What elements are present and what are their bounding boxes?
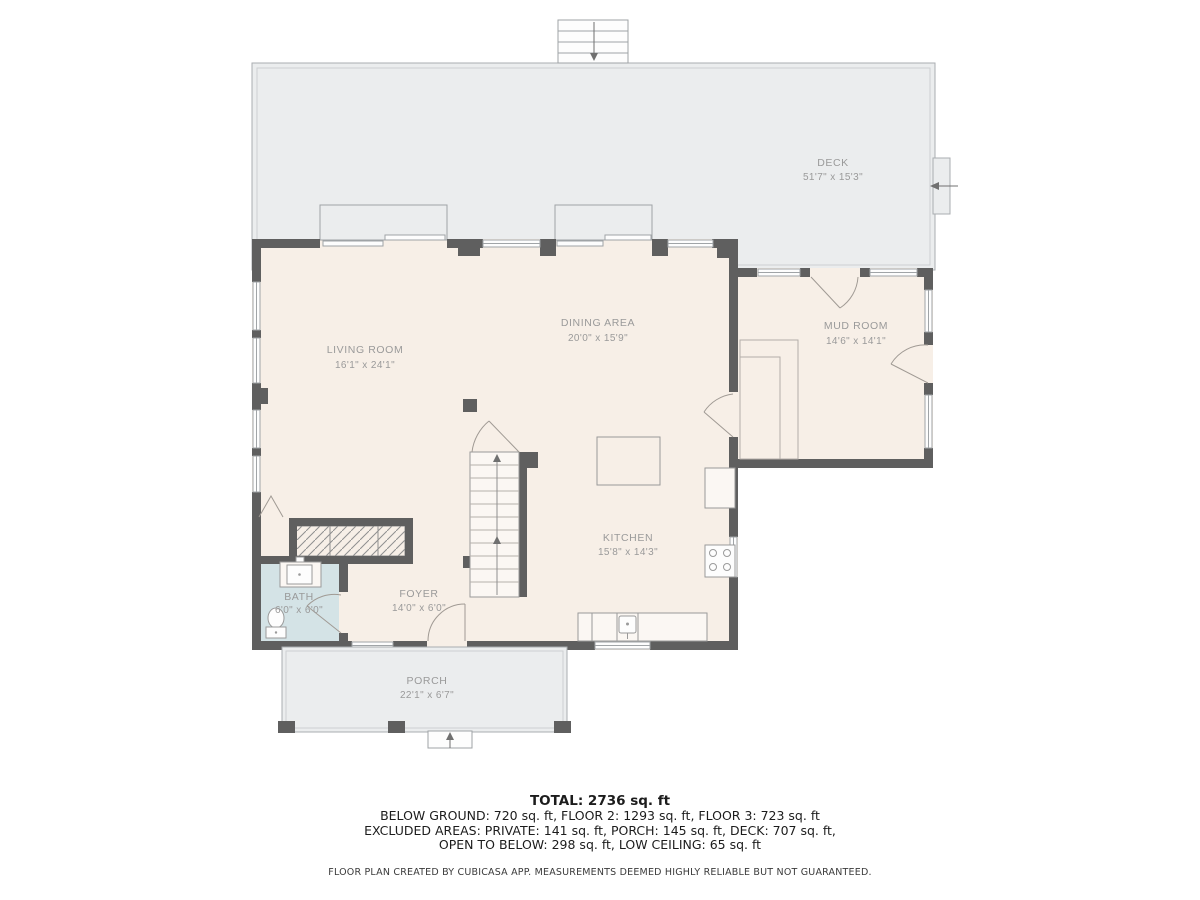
- room-dims-foyer: 14'0" x 6'0": [392, 603, 446, 614]
- window: [595, 642, 650, 649]
- room-dims-kitchen: 15'8" x 14'3": [598, 547, 658, 558]
- window: [925, 290, 932, 332]
- interior-staircase: [470, 452, 519, 597]
- porch-post: [554, 721, 571, 733]
- room-label-mud-room: MUD ROOM: [824, 320, 888, 332]
- room-dims-mud-room: 14'6" x 14'1": [826, 336, 886, 347]
- room-dims-bath: 6'0" x 6'0": [275, 605, 323, 616]
- room-label-kitchen: KITCHEN: [603, 532, 653, 544]
- mud-room-floor: [737, 268, 933, 468]
- floor-plan-page: DECK 51'7" x 15'3" LIVING ROOM 16'1" x 2…: [0, 0, 1200, 900]
- room-dims-porch: 22'1" x 6'7": [400, 690, 454, 701]
- window: [483, 240, 540, 247]
- porch-steps: [428, 731, 472, 748]
- column: [463, 399, 477, 412]
- summary-line-2: EXCLUDED AREAS: PRIVATE: 141 sq. ft, POR…: [0, 824, 1200, 839]
- room-label-bath: BATH: [284, 591, 314, 603]
- window: [668, 240, 713, 247]
- porch-post: [278, 721, 295, 733]
- room-label-deck: DECK: [817, 157, 849, 169]
- floor-plan-canvas: DECK 51'7" x 15'3" LIVING ROOM 16'1" x 2…: [0, 0, 1200, 900]
- hatch-low-ceiling: [296, 526, 405, 556]
- room-dims-dining-area: 20'0" x 15'9": [568, 333, 628, 344]
- room-label-living-room: LIVING ROOM: [327, 344, 404, 356]
- porch-post: [388, 721, 405, 733]
- window: [253, 338, 260, 383]
- window: [253, 282, 260, 330]
- kitchen-counter-right: [705, 468, 735, 508]
- window: [870, 269, 917, 276]
- window: [253, 456, 260, 492]
- room-label-dining-area: DINING AREA: [561, 317, 635, 329]
- area-summary: TOTAL: 2736 sq. ft BELOW GROUND: 720 sq.…: [0, 794, 1200, 853]
- room-dims-deck: 51'7" x 15'3": [803, 172, 863, 183]
- room-dims-living-room: 16'1" x 24'1": [335, 360, 395, 371]
- sliding-door-left: [320, 205, 447, 246]
- room-label-porch: PORCH: [407, 675, 448, 687]
- stove: [705, 545, 735, 577]
- window: [253, 410, 260, 448]
- bath-vanity: [280, 557, 321, 587]
- kitchen-counter-bottom: [578, 613, 707, 641]
- total-area: TOTAL: 2736 sq. ft: [0, 794, 1200, 809]
- deck-side-entry: [930, 158, 958, 214]
- summary-line-3: OPEN TO BELOW: 298 sq. ft, LOW CEILING: …: [0, 838, 1200, 853]
- sliding-door-right: [555, 205, 652, 246]
- deck-exterior-stairs: [558, 20, 628, 63]
- room-label-foyer: FOYER: [399, 588, 438, 600]
- summary-line-1: BELOW GROUND: 720 sq. ft, FLOOR 2: 1293 …: [0, 809, 1200, 824]
- window: [758, 269, 800, 276]
- window: [925, 395, 932, 448]
- disclaimer-note: FLOOR PLAN CREATED BY CUBICASA APP. MEAS…: [0, 867, 1200, 878]
- kitchen-island: [597, 437, 660, 485]
